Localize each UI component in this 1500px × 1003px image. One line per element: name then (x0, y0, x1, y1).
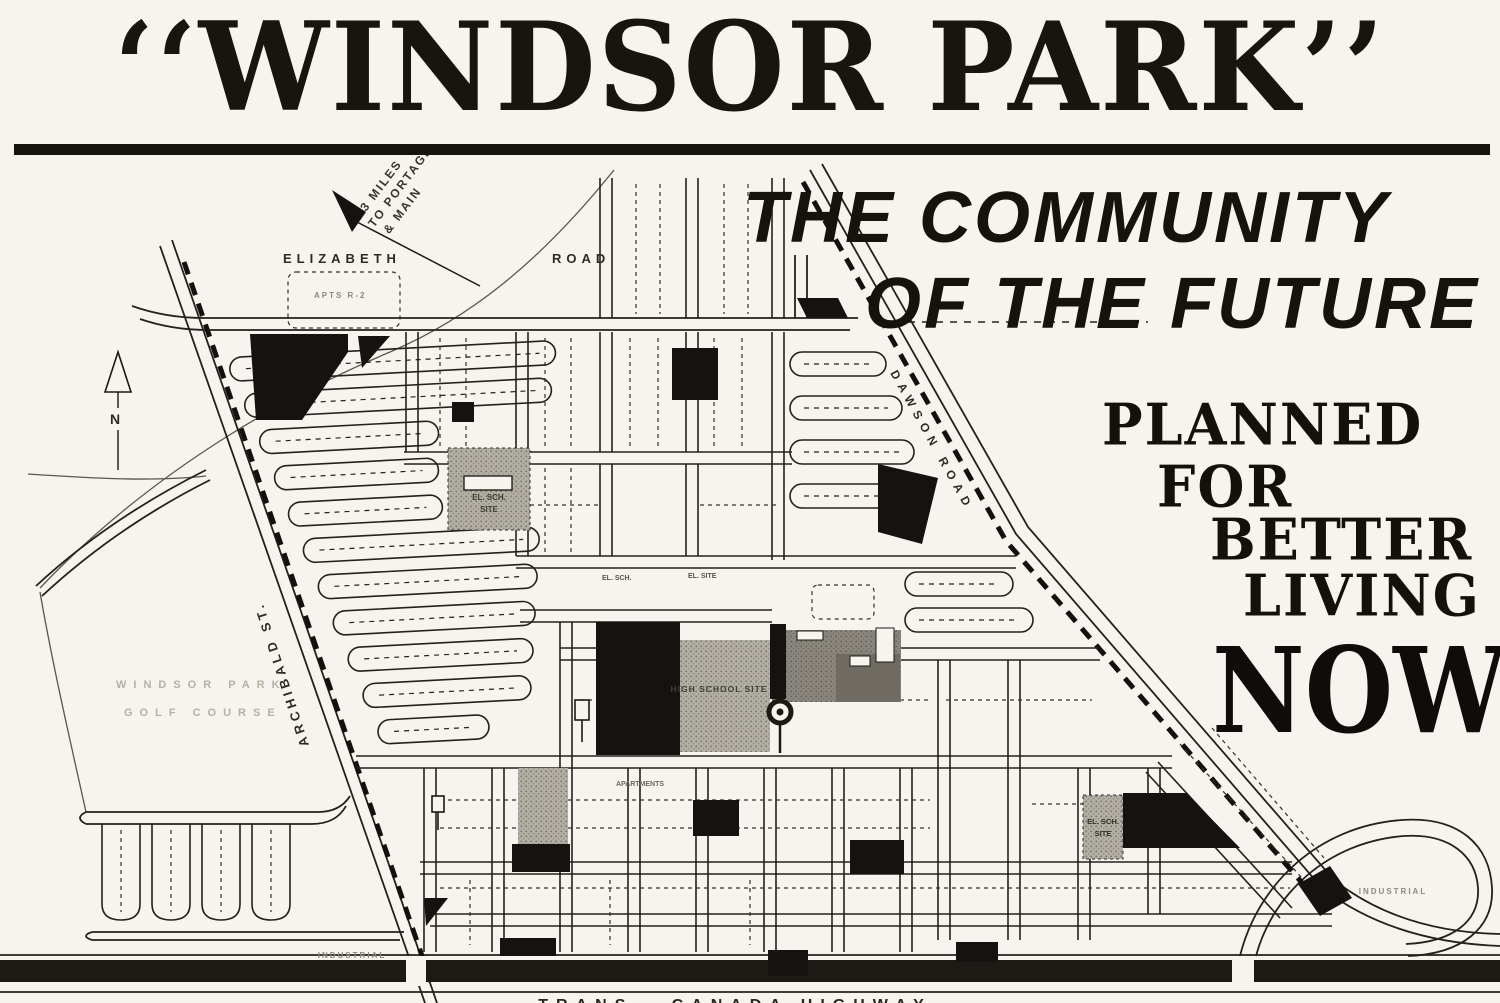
highway-label: TRANS - CANADA HIGHWAY (538, 997, 931, 1003)
golf-course-label-1: WINDSOR PARK (116, 679, 287, 691)
archibald-st-label: ARCHIBALD ST. (251, 600, 312, 749)
apartments-block-label: APARTMENTS (616, 781, 664, 788)
headline-planned: PLANNED (1102, 396, 1423, 453)
high-school-site-label: HIGH SCHOOL SITE (670, 684, 767, 694)
el-site-small-label-b: EL. SITE (688, 573, 717, 580)
elizabeth-road-label: ELIZABETH (283, 251, 401, 266)
headline-future: OF THE FUTURE (865, 268, 1480, 340)
golf-course-label-2: GOLF COURSE (124, 707, 282, 719)
headline-now: NOW! (1212, 632, 1500, 750)
north-label: N (110, 411, 120, 427)
headline-better: BETTER (1210, 511, 1473, 568)
elizabeth-road-suffix-label: ROAD (552, 251, 610, 266)
industrial-e-label: INDUSTRIAL (1359, 887, 1427, 896)
headline-living: LIVING (1243, 567, 1481, 624)
highway-band (0, 960, 1500, 982)
school-site-2-label-b: SITE (1095, 829, 1112, 838)
highway-crossing-gap (406, 956, 426, 986)
el-site-small-label-a: EL. SCH. (602, 575, 632, 582)
school-site-2-label-a: EL. SCH. (1087, 817, 1119, 826)
advertisement-page: ELIZABETH ROAD DAWSON ROAD ARCHIBALD ST.… (0, 0, 1500, 1003)
industrial-sw-label: INDUSTRIAL (318, 951, 386, 960)
headline-community: THE COMMUNITY (743, 182, 1390, 254)
tower-icon (432, 796, 444, 812)
title-rule (14, 144, 1490, 155)
apartments-r2-label: APTS R-2 (314, 291, 366, 300)
tower-icon (575, 700, 589, 720)
page-title: ‘‘WINDSOR PARK’’ (0, 6, 1500, 129)
highway-crossing-gap (1232, 956, 1254, 986)
school-site-1-label-a: EL. SCH. (472, 493, 506, 502)
school-site-1-label-b: SITE (480, 505, 498, 514)
